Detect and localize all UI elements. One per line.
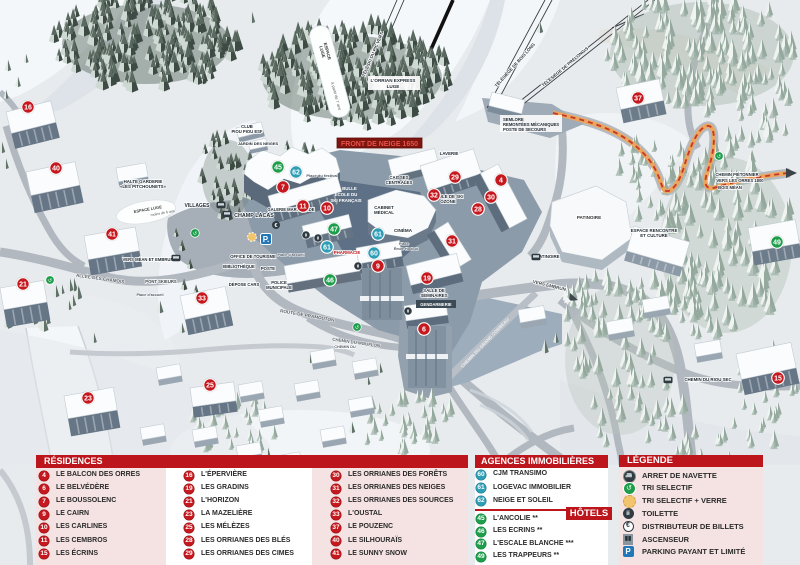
svg-text:DÉPOSE CARS: DÉPOSE CARS	[229, 282, 260, 287]
svg-text:↺: ↺	[355, 325, 359, 331]
svg-text:ii: ii	[357, 264, 360, 269]
svg-text:10: 10	[323, 206, 331, 213]
svg-text:LA BULLE: LA BULLE	[335, 186, 357, 191]
svg-text:CINÉMA: CINÉMA	[394, 226, 413, 233]
svg-text:6: 6	[422, 327, 426, 334]
svg-text:LUGE: LUGE	[387, 84, 400, 89]
svg-text:VERS LES ORRES 1800: VERS LES ORRES 1800	[716, 178, 764, 183]
svg-text:CHAMP LACAS: CHAMP LACAS	[234, 213, 274, 219]
svg-text:61: 61	[323, 245, 331, 252]
svg-text:€: €	[275, 223, 278, 229]
svg-text:PONT SKIEURS: PONT SKIEURS	[145, 279, 177, 284]
svg-text:JARDIN DES NEIGES: JARDIN DES NEIGES	[238, 141, 279, 146]
svg-text:41: 41	[108, 232, 116, 239]
svg-text:19: 19	[423, 276, 431, 283]
svg-text:ii: ii	[305, 233, 308, 238]
svg-text:PIOU PIOU ESF: PIOU PIOU ESF	[232, 129, 263, 134]
svg-text:ET CULTURE: ET CULTURE	[640, 233, 668, 238]
svg-text:21: 21	[19, 282, 27, 289]
svg-text:BOIS MÉAN: BOIS MÉAN	[718, 185, 742, 190]
svg-text:61: 61	[374, 232, 382, 239]
svg-text:37: 37	[634, 96, 642, 103]
svg-text:9: 9	[376, 264, 380, 271]
svg-text:↺: ↺	[48, 278, 52, 284]
svg-text:PATINOIRE: PATINOIRE	[577, 215, 601, 220]
svg-text:7: 7	[281, 185, 285, 192]
svg-text:FRONT DE NEIGE 1650: FRONT DE NEIGE 1650	[341, 141, 418, 148]
svg-text:↺: ↺	[717, 154, 721, 160]
svg-text:ÉCOLE DU: ÉCOLE DU	[335, 192, 358, 197]
svg-text:ii: ii	[317, 236, 320, 241]
svg-text:ii: ii	[407, 309, 410, 314]
svg-text:4: 4	[499, 178, 503, 185]
svg-text:60: 60	[370, 251, 378, 258]
svg-text:CENTRALES: CENTRALES	[386, 180, 413, 185]
svg-text:40: 40	[52, 166, 60, 173]
svg-text:VILLAGES: VILLAGES	[184, 203, 210, 209]
svg-text:MÉDICAL: MÉDICAL	[374, 210, 394, 215]
svg-text:Place d'accueil: Place d'accueil	[136, 293, 163, 297]
svg-text:OZONE: OZONE	[440, 199, 456, 204]
svg-text:49: 49	[773, 240, 781, 247]
svg-text:32: 32	[430, 193, 438, 200]
svg-text:BIBLIOTHÈQUE: BIBLIOTHÈQUE	[223, 264, 255, 269]
svg-text:62: 62	[292, 170, 300, 177]
svg-text:Émile Hodoul: Émile Hodoul	[394, 246, 418, 251]
svg-text:PHARMACIE: PHARMACIE	[334, 250, 361, 255]
svg-text:Place: Place	[399, 242, 409, 246]
svg-text:31: 31	[448, 239, 456, 246]
svg-text:CHEMIN PIÉTONNIER: CHEMIN PIÉTONNIER	[715, 172, 758, 177]
svg-text:CHEMIN DU RIOU SEC: CHEMIN DU RIOU SEC	[684, 377, 732, 382]
svg-text:VERS MÉAN ET EMBRUN: VERS MÉAN ET EMBRUN	[123, 257, 174, 262]
svg-text:LAVERIE: LAVERIE	[440, 151, 459, 156]
svg-text:45: 45	[274, 165, 282, 172]
svg-text:SKI FRANÇAIS: SKI FRANÇAIS	[330, 198, 361, 203]
svg-text:11: 11	[299, 204, 307, 211]
svg-text:25: 25	[206, 383, 214, 390]
svg-text:L'ORRIAN EXPRESS: L'ORRIAN EXPRESS	[371, 78, 416, 83]
svg-text:Place du festival: Place du festival	[306, 173, 337, 178]
svg-text:29: 29	[451, 175, 459, 182]
svg-text:16: 16	[24, 105, 32, 112]
svg-text:MUNICIPALE: MUNICIPALE	[266, 285, 292, 290]
svg-text:CHEMIN DU: CHEMIN DU	[334, 345, 356, 349]
svg-text:OFFICE DE TOURISME: OFFICE DE TOURISME	[230, 254, 276, 259]
svg-text:P.: P.	[263, 235, 270, 244]
svg-text:15: 15	[774, 376, 782, 383]
svg-text:33: 33	[198, 296, 206, 303]
svg-text:30: 30	[487, 195, 495, 202]
svg-text:POSTE: POSTE	[261, 266, 275, 271]
svg-text:GENDARMERIE: GENDARMERIE	[420, 302, 452, 307]
svg-text:SÉMINAIRES: SÉMINAIRES	[420, 293, 447, 298]
svg-text:Place d'accueil: Place d'accueil	[277, 253, 304, 257]
svg-text:«LES PITCHOUNETS»: «LES PITCHOUNETS»	[120, 184, 167, 189]
svg-text:47: 47	[330, 227, 338, 234]
svg-text:POSTE DE SECOURS: POSTE DE SECOURS	[503, 127, 546, 132]
svg-text:23: 23	[84, 396, 92, 403]
svg-text:46: 46	[326, 278, 334, 285]
svg-text:28: 28	[474, 207, 482, 214]
svg-text:↺: ↺	[193, 231, 197, 237]
